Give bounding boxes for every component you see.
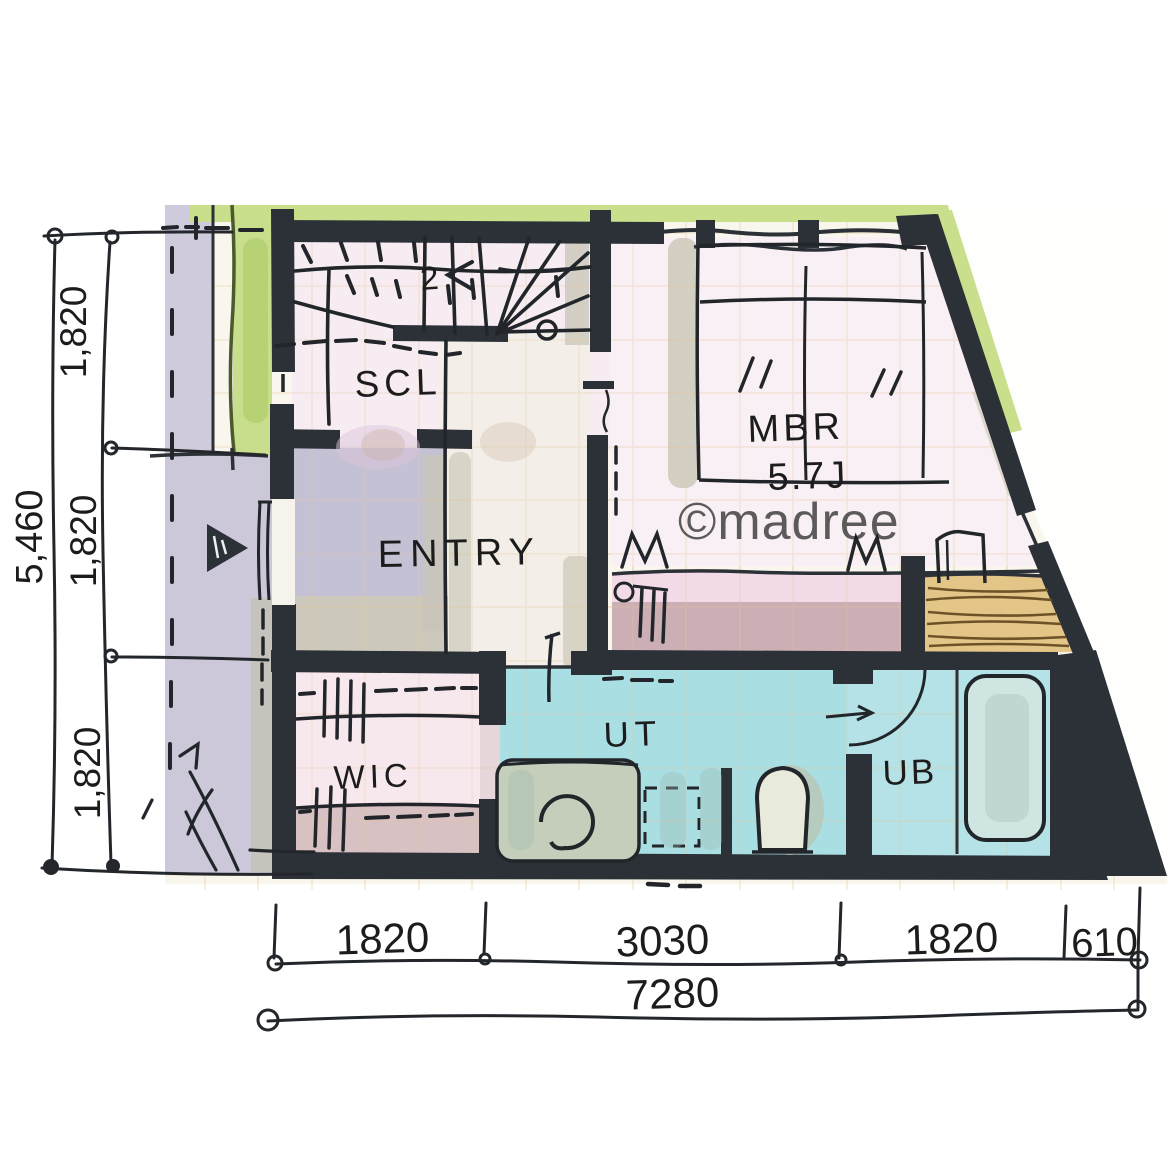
svg-text:1,820: 1,820 — [63, 495, 104, 588]
svg-text:610: 610 — [1070, 920, 1138, 966]
svg-text:5,460: 5,460 — [9, 489, 51, 584]
svg-text:7280: 7280 — [625, 968, 720, 1018]
svg-text:ENTRY: ENTRY — [377, 531, 541, 576]
svg-text:UT: UT — [603, 714, 663, 755]
svg-text:UB: UB — [882, 752, 938, 793]
svg-text:MBR: MBR — [747, 406, 845, 451]
svg-text:SCL: SCL — [354, 361, 442, 405]
svg-text:2: 2 — [419, 259, 440, 297]
svg-text:©madree: ©madree — [678, 493, 900, 551]
svg-text:3030: 3030 — [615, 915, 710, 965]
svg-text:5.7J: 5.7J — [767, 454, 848, 499]
svg-text:1,820: 1,820 — [67, 727, 108, 820]
svg-text:1,820: 1,820 — [53, 286, 94, 379]
svg-text:WIC: WIC — [333, 756, 413, 796]
svg-text:1820: 1820 — [904, 913, 999, 963]
svg-text:1820: 1820 — [335, 913, 430, 963]
